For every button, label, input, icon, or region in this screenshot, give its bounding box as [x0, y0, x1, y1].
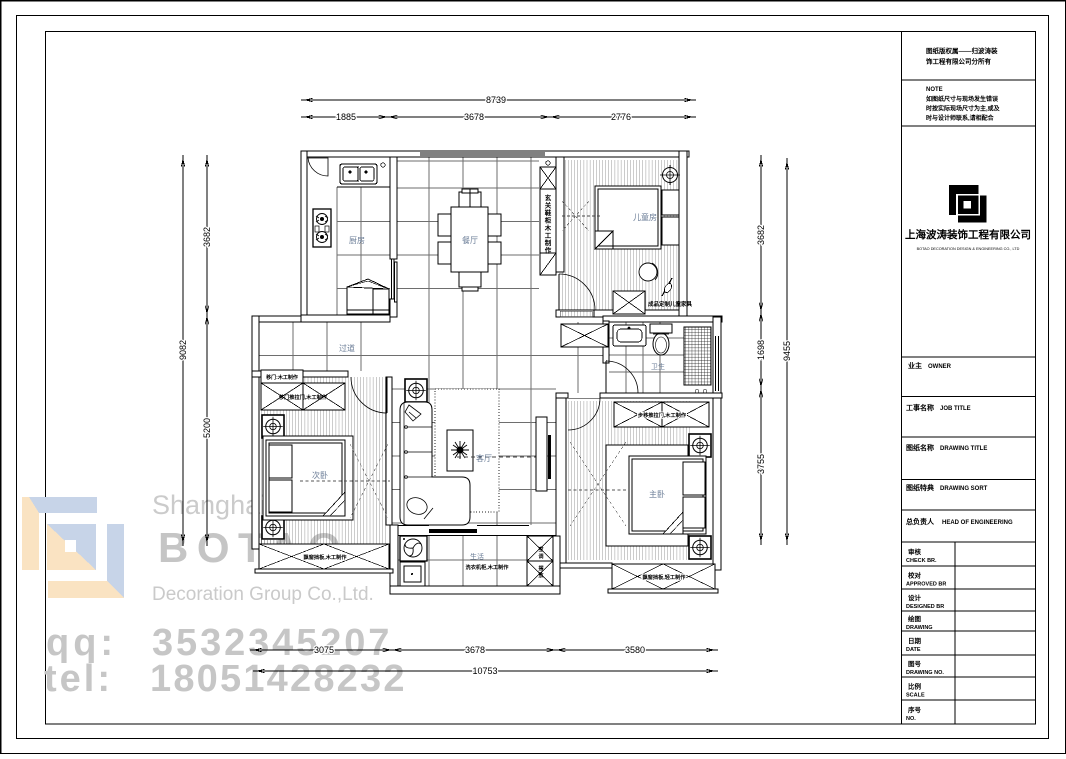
svg-text:图纸特典: 图纸特典 [906, 483, 934, 492]
svg-text:主卧: 主卧 [649, 489, 665, 499]
svg-text:3678: 3678 [465, 645, 485, 655]
svg-text:OWNER: OWNER [928, 364, 952, 370]
svg-text:鞋: 鞋 [545, 208, 552, 217]
svg-text:比例: 比例 [908, 682, 922, 691]
svg-text:NOTE: NOTE [926, 87, 943, 93]
svg-text:10753: 10753 [472, 666, 497, 676]
svg-text:CHECK BR.: CHECK BR. [906, 558, 937, 564]
svg-text:图纸版权属——归波涛装: 图纸版权属——归波涛装 [926, 46, 998, 55]
svg-text:Shanghai: Shanghai [152, 490, 266, 520]
svg-text:HEAD OF ENGINEERING: HEAD OF ENGINEERING [942, 520, 1013, 526]
svg-text:DRAWING NO.: DRAWING NO. [906, 670, 944, 676]
svg-text:3075: 3075 [314, 645, 334, 655]
svg-text:时与设计师联系,请相配合: 时与设计师联系,请相配合 [926, 114, 995, 122]
svg-text:饰工程有限公司分所有: 饰工程有限公司分所有 [926, 57, 992, 66]
svg-text:客厅: 客厅 [476, 453, 492, 463]
svg-text:次卧: 次卧 [312, 470, 328, 480]
svg-text:移门推拉门,木工制作: 移门推拉门,木工制作 [279, 393, 328, 401]
svg-text:tel:: tel: [44, 658, 113, 700]
svg-text:柜: 柜 [544, 216, 552, 225]
svg-text:8739: 8739 [486, 95, 506, 105]
svg-text:成品定制儿童家具: 成品定制儿童家具 [648, 300, 693, 308]
svg-text:3580: 3580 [625, 645, 645, 655]
svg-text:2776: 2776 [611, 112, 631, 122]
svg-text:放: 放 [537, 572, 544, 579]
svg-text:如图纸尺寸与现场发生错误: 如图纸尺寸与现场发生错误 [926, 95, 999, 103]
svg-text:SCALE: SCALE [906, 693, 925, 699]
svg-text:图号: 图号 [908, 659, 922, 668]
svg-text:洗衣机柜,木工制作: 洗衣机柜,木工制作 [466, 563, 510, 571]
svg-text:DATE: DATE [906, 647, 921, 653]
svg-text:过道: 过道 [339, 343, 355, 353]
svg-text:餐厅: 餐厅 [462, 236, 478, 245]
svg-text:玄: 玄 [545, 193, 552, 202]
svg-text:移门:木工制作: 移门:木工制作 [266, 374, 298, 381]
svg-text:3755: 3755 [756, 454, 766, 474]
svg-text:校对: 校对 [908, 571, 922, 580]
svg-text:1698: 1698 [756, 340, 766, 360]
svg-text:空: 空 [538, 546, 543, 553]
svg-text:DRAWING: DRAWING [906, 625, 933, 631]
svg-text:NO.: NO. [906, 716, 916, 722]
svg-text:18051428232: 18051428232 [150, 658, 407, 700]
svg-text:时按实际现场尺寸为主,或及: 时按实际现场尺寸为主,或及 [926, 105, 1000, 113]
svg-text:木: 木 [544, 223, 552, 232]
svg-text:摆: 摆 [538, 565, 543, 572]
svg-text:飘窗挡板,木工制作: 飘窗挡板,木工制作 [304, 553, 348, 561]
svg-text:DESIGNED BR: DESIGNED BR [906, 604, 944, 610]
svg-text:飘窗挡板,轻工制作: 飘窗挡板,轻工制作 [643, 573, 687, 581]
svg-text:日期: 日期 [908, 636, 922, 645]
svg-text:序号: 序号 [907, 705, 922, 714]
svg-text:DRAWING TITLE: DRAWING TITLE [940, 446, 987, 452]
svg-text:制: 制 [545, 238, 552, 247]
svg-text:生活: 生活 [470, 552, 484, 561]
svg-text:审核: 审核 [908, 547, 922, 556]
svg-text:步移推拉门,木工制作: 步移推拉门,木工制作 [638, 411, 687, 419]
svg-text:厨房: 厨房 [349, 235, 365, 245]
svg-text:卫生: 卫生 [651, 362, 665, 371]
svg-text:儿童房: 儿童房 [633, 212, 657, 222]
svg-text:工: 工 [545, 232, 552, 240]
svg-text:9455: 9455 [782, 341, 792, 361]
svg-text:3682: 3682 [756, 225, 766, 245]
svg-text:3678: 3678 [464, 112, 484, 122]
svg-text:BOTAO DECORATION DESIGN & ENGI: BOTAO DECORATION DESIGN & ENGINEERING CO… [917, 247, 1020, 251]
svg-text:9082: 9082 [178, 340, 188, 360]
svg-text:绘图: 绘图 [908, 614, 922, 623]
svg-text:工事名称: 工事名称 [906, 403, 934, 412]
svg-text:图纸名称: 图纸名称 [906, 443, 934, 452]
svg-text:作: 作 [545, 246, 552, 255]
svg-text:3682: 3682 [202, 227, 212, 247]
svg-text:1885: 1885 [336, 112, 356, 122]
svg-text:设计: 设计 [908, 593, 922, 602]
svg-text:Decoration Group Co.,Ltd.: Decoration Group Co.,Ltd. [152, 584, 374, 605]
svg-text:APPROVED BR: APPROVED BR [906, 582, 946, 588]
svg-text:DRAWING SORT: DRAWING SORT [940, 486, 988, 492]
svg-text:总负责人: 总负责人 [906, 517, 935, 526]
svg-text:关: 关 [545, 201, 552, 210]
svg-text:5200: 5200 [202, 418, 212, 438]
svg-text:上海波涛装饰工程有限公司: 上海波涛装饰工程有限公司 [905, 228, 1031, 241]
svg-text:JOB TITLE: JOB TITLE [940, 406, 971, 412]
svg-text:业主: 业主 [908, 361, 922, 370]
svg-text:调: 调 [538, 553, 543, 560]
